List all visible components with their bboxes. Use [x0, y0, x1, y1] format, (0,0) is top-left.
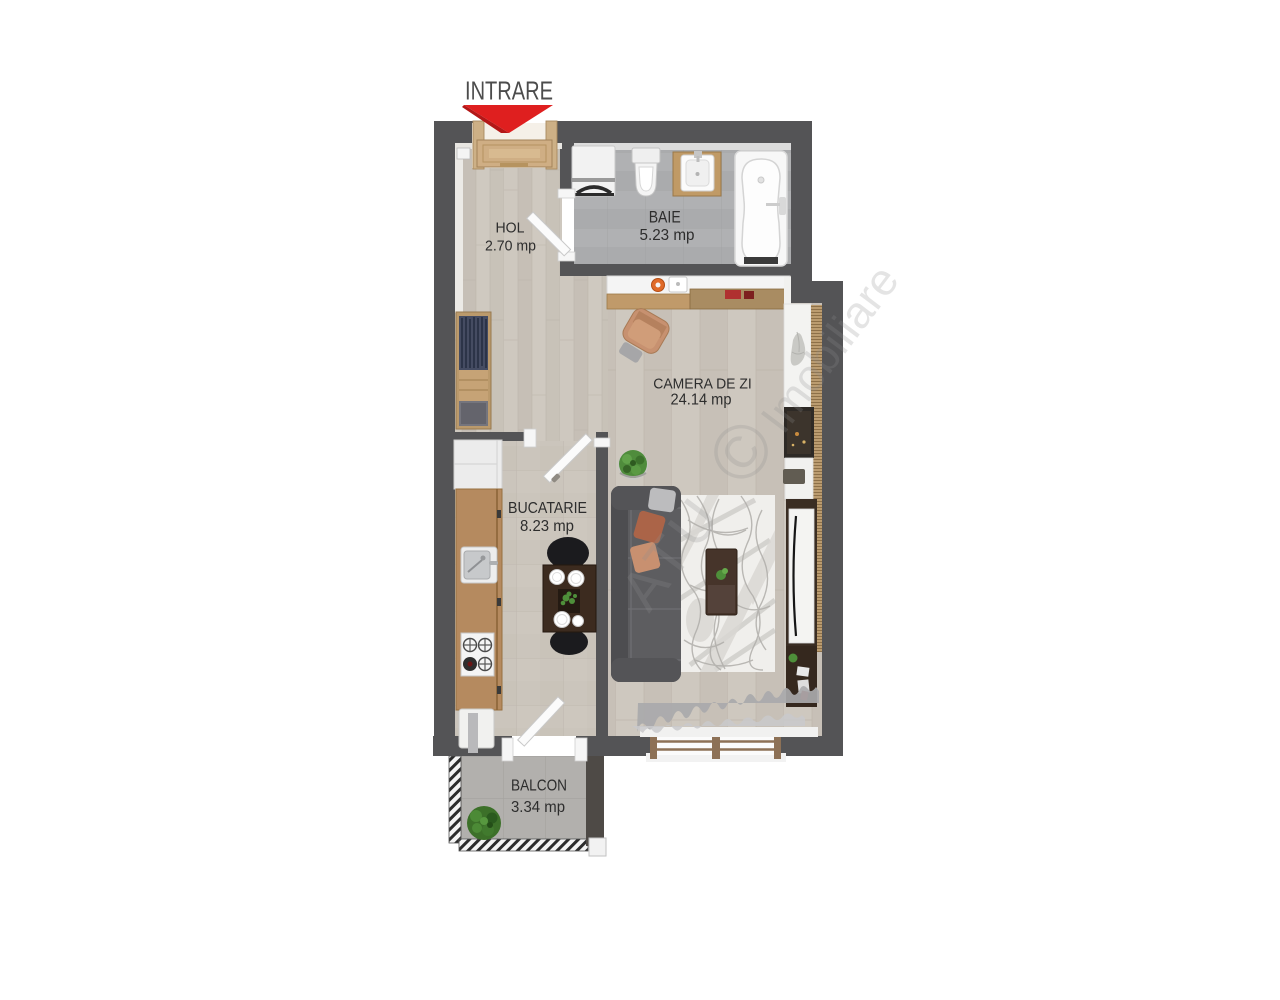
svg-text:24.14 mp: 24.14 mp — [671, 392, 732, 409]
svg-text:BALCON: BALCON — [511, 778, 567, 795]
svg-text:2.70 mp: 2.70 mp — [485, 238, 536, 255]
svg-text:CAMERA DE ZI: CAMERA DE ZI — [653, 376, 752, 393]
svg-text:BAIE: BAIE — [649, 208, 681, 227]
svg-text:3.34 mp: 3.34 mp — [511, 799, 565, 816]
svg-text:HOL: HOL — [496, 220, 525, 237]
svg-text:BUCATARIE: BUCATARIE — [508, 500, 587, 517]
svg-text:INTRARE: INTRARE — [465, 76, 553, 106]
svg-text:5.23 mp: 5.23 mp — [640, 227, 695, 244]
svg-text:8.23 mp: 8.23 mp — [520, 518, 574, 535]
